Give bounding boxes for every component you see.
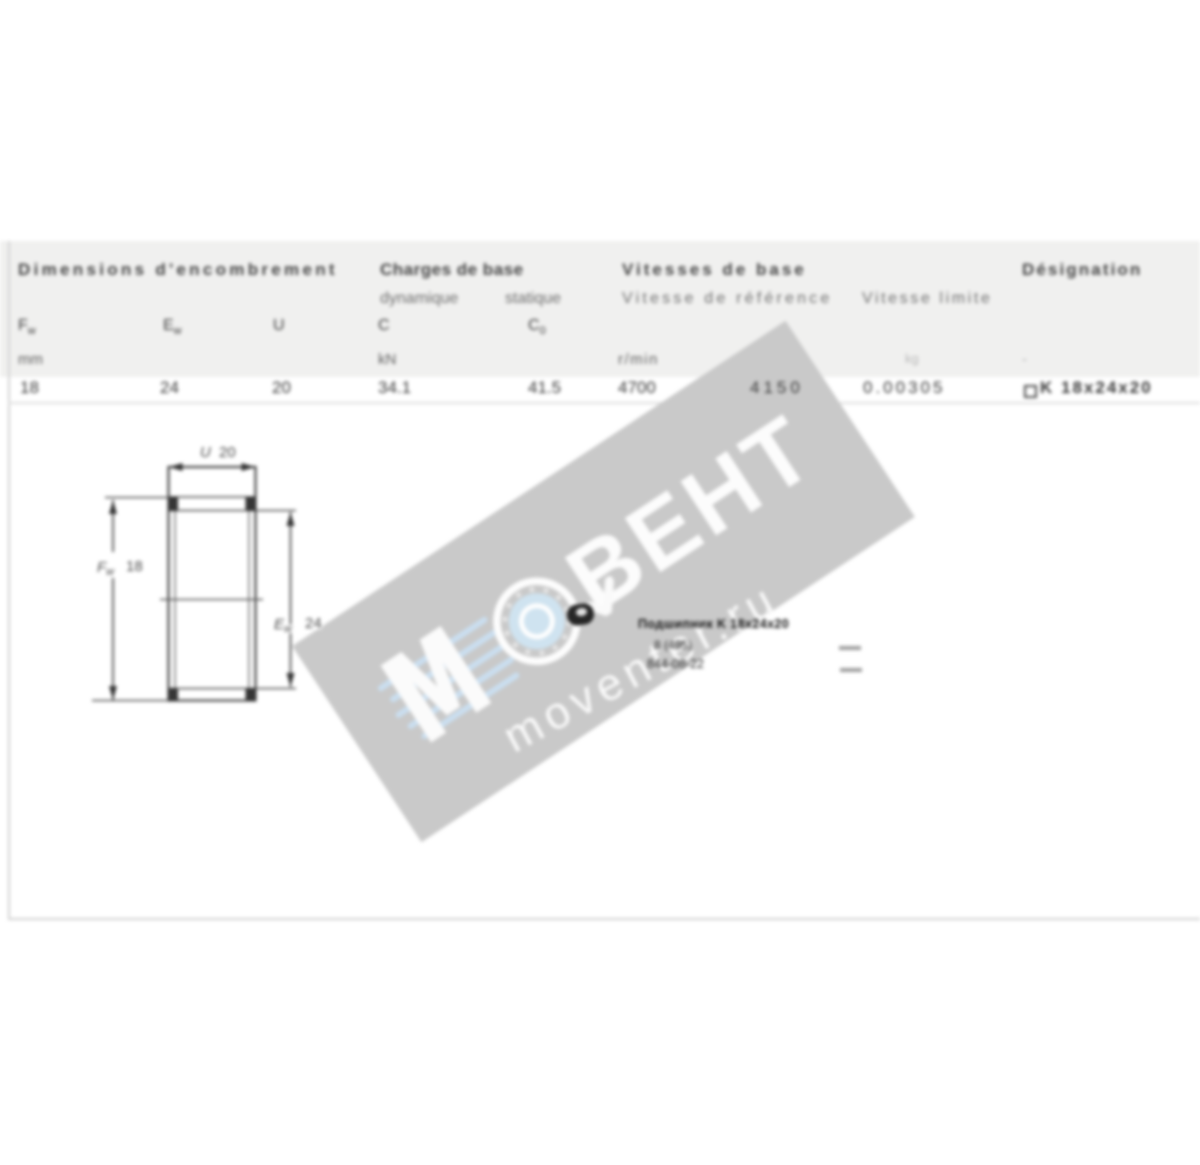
svg-text:U: U [200, 444, 211, 461]
svg-text:24: 24 [305, 615, 322, 632]
svg-text:18: 18 [126, 558, 143, 575]
svg-text:20: 20 [219, 444, 236, 461]
